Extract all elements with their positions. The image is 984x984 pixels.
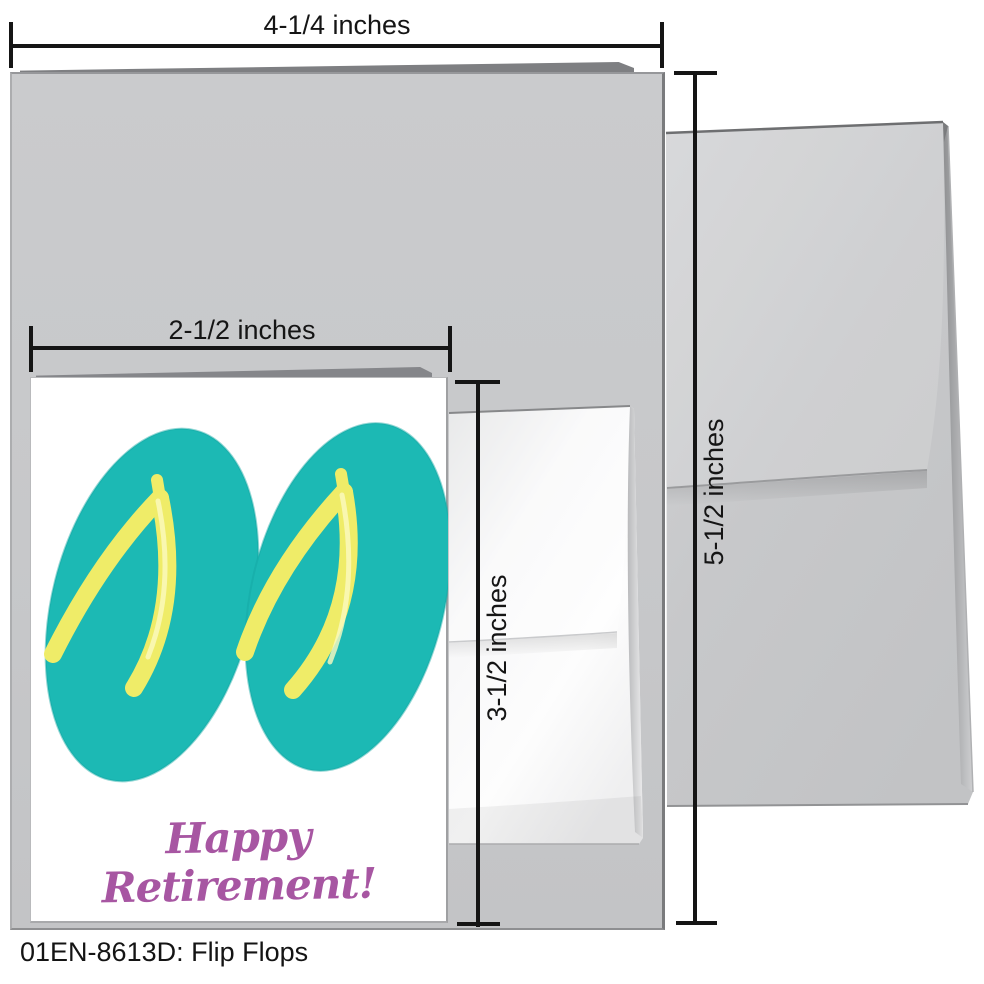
left-flip-flop-toe-post <box>157 480 160 498</box>
height-dimension-tick-bottom <box>676 921 717 925</box>
width-dimension-label: 4-1/4 inches <box>177 11 497 39</box>
small-card-front: Happy Retirement! <box>30 377 448 923</box>
height-dimension-line <box>693 72 697 925</box>
mini-height-dimension-label: 3-1/2 inches <box>482 538 512 758</box>
mini-width-dimension-label: 2-1/2 inches <box>82 316 402 344</box>
greeting-card-product-mockup: Happy Retirement! 4-1/4 inches 2-1/2 inc… <box>0 0 984 984</box>
mini-width-dimension-tick-left <box>29 326 33 372</box>
right-flip-flop-toe-post <box>341 474 344 492</box>
mini-height-dimension-line <box>476 381 480 927</box>
mini-width-dimension-tick-right <box>448 326 452 372</box>
width-dimension-tick-left <box>9 22 13 68</box>
mini-height-dimension-tick-bottom <box>457 922 500 926</box>
width-dimension-line <box>10 44 663 48</box>
greeting-text: Happy Retirement! <box>30 810 447 913</box>
product-caption: 01EN-8613D: Flip Flops <box>20 937 308 967</box>
right-flip-flop-sole <box>214 403 448 792</box>
mini-width-dimension-line <box>31 346 452 350</box>
height-dimension-label: 5-1/2 inches <box>699 382 729 602</box>
height-dimension-tick-top <box>674 71 717 75</box>
width-dimension-tick-right <box>660 22 664 68</box>
mini-height-dimension-tick-top <box>455 380 500 384</box>
